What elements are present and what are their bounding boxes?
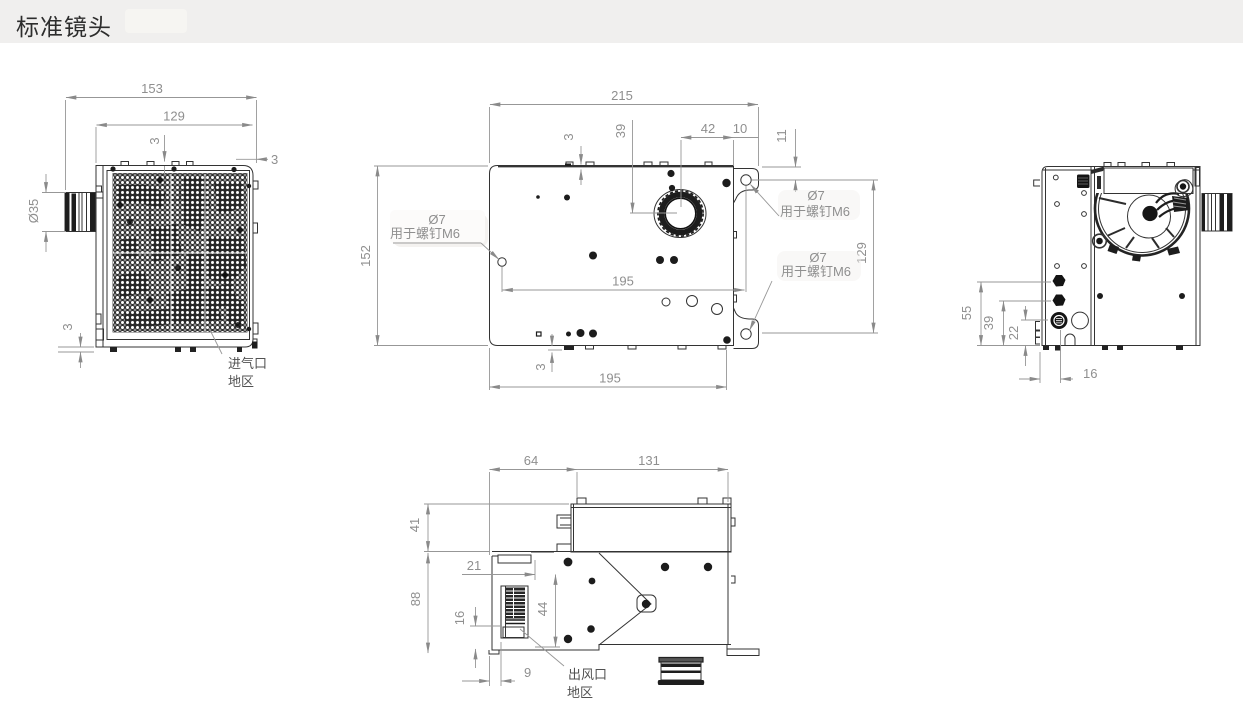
svg-text:9: 9 — [524, 665, 531, 680]
svg-text:Ø7: Ø7 — [428, 212, 445, 227]
svg-text:88: 88 — [408, 592, 423, 606]
svg-text:Ø7: Ø7 — [807, 188, 824, 203]
svg-text:16: 16 — [1083, 366, 1097, 381]
svg-text:3: 3 — [271, 152, 278, 167]
svg-text:用于螺钉M6: 用于螺钉M6 — [390, 226, 460, 241]
svg-text:16: 16 — [452, 611, 467, 625]
svg-text:55: 55 — [959, 306, 974, 320]
svg-text:地区: 地区 — [567, 685, 593, 700]
svg-text:3: 3 — [533, 363, 548, 370]
svg-text:215: 215 — [611, 88, 633, 103]
svg-text:出风口: 出风口 — [568, 667, 607, 682]
svg-text:195: 195 — [599, 371, 621, 386]
svg-text:22: 22 — [1006, 326, 1021, 340]
svg-text:Ø7: Ø7 — [809, 250, 826, 265]
svg-text:152: 152 — [358, 245, 373, 267]
svg-text:21: 21 — [467, 558, 481, 573]
svg-text:3: 3 — [60, 323, 75, 330]
svg-text:42: 42 — [701, 121, 715, 136]
svg-text:64: 64 — [524, 453, 538, 468]
svg-text:3: 3 — [147, 137, 162, 144]
svg-text:用于螺钉M6: 用于螺钉M6 — [780, 204, 850, 219]
svg-text:195: 195 — [612, 274, 634, 289]
svg-text:41: 41 — [407, 518, 422, 532]
svg-text:地区: 地区 — [228, 374, 254, 389]
svg-text:3: 3 — [561, 133, 576, 140]
svg-text:153: 153 — [141, 81, 163, 96]
svg-text:44: 44 — [535, 602, 550, 616]
svg-text:10: 10 — [733, 121, 747, 136]
svg-text:131: 131 — [638, 453, 660, 468]
svg-text:进气口: 进气口 — [228, 356, 267, 371]
svg-text:11: 11 — [774, 129, 789, 143]
svg-text:用于螺钉M6: 用于螺钉M6 — [781, 264, 851, 279]
svg-text:Ø35: Ø35 — [26, 199, 41, 224]
svg-text:39: 39 — [981, 316, 996, 330]
svg-text:129: 129 — [163, 109, 185, 124]
svg-text:39: 39 — [613, 124, 628, 138]
